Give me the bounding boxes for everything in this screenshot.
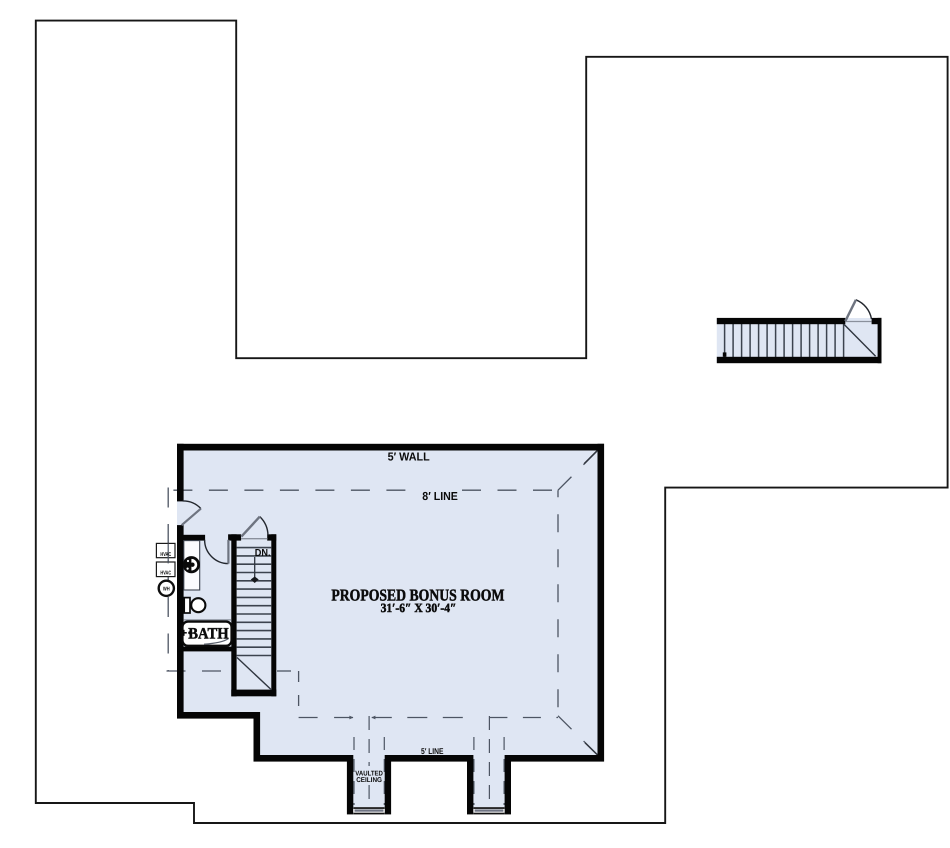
svg-text:5′ WALL: 5′ WALL — [388, 450, 430, 463]
svg-text:5′ LINE: 5′ LINE — [421, 746, 444, 756]
svg-text:HVAC: HVAC — [160, 571, 171, 577]
svg-text:HVAC: HVAC — [160, 552, 171, 558]
svg-text:DN.: DN. — [255, 548, 271, 559]
svg-text:BATH: BATH — [188, 625, 229, 642]
svg-text:CEILING: CEILING — [356, 777, 382, 784]
svg-text:8′ LINE: 8′ LINE — [422, 490, 458, 503]
svg-text:WH: WH — [163, 586, 170, 592]
svg-text:31′-6″ X 30′-4″: 31′-6″ X 30′-4″ — [381, 601, 457, 615]
